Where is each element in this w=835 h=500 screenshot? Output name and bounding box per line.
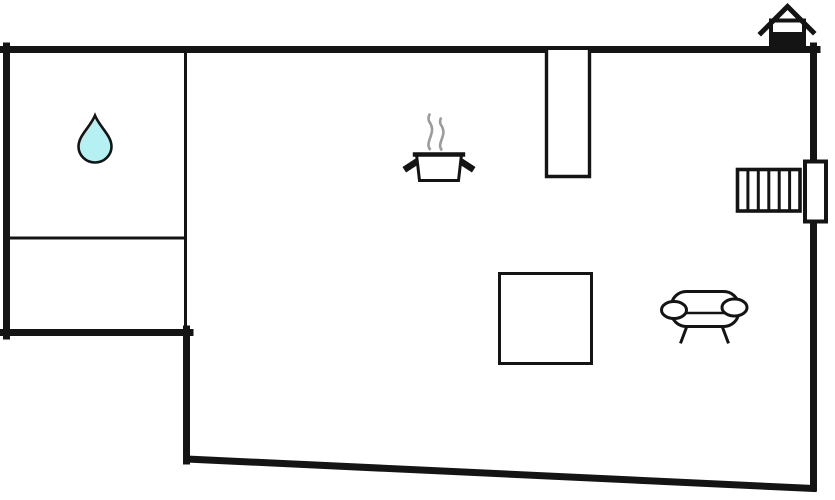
sofa-right-leg	[722, 326, 728, 342]
table-icon: square table	[500, 274, 592, 364]
interior-wall-stub: interior wall stub	[547, 50, 590, 177]
steam-lines	[428, 114, 443, 151]
pot-body	[417, 155, 462, 181]
house-icon: house entrance marker	[761, 7, 813, 47]
floor-plan: interior wall stub staircase door openin…	[0, 0, 835, 500]
steam-line-left	[428, 114, 432, 151]
sofa-icon: sofa (living area)	[662, 292, 748, 343]
wall-stub-outline	[547, 50, 590, 177]
cooking-pot-icon: cooking pot with steam (kitchen)	[407, 114, 471, 181]
walls	[3, 46, 817, 489]
door-leaf	[805, 162, 826, 222]
floor-plan-drawing: interior wall stub staircase door openin…	[0, 0, 835, 500]
water-drop-shape	[79, 116, 112, 163]
sofa-right-armrest	[722, 299, 747, 316]
bottom-slanted-wall	[187, 459, 813, 489]
table-outline	[500, 274, 592, 364]
door-icon: door opening	[805, 162, 826, 222]
stairs-icon: staircase	[738, 170, 801, 212]
water-drop-icon: water drop (bathroom)	[79, 116, 112, 163]
sofa-left-armrest	[662, 302, 687, 319]
steam-line-right	[440, 118, 443, 151]
sofa-left-leg	[681, 326, 687, 342]
house-body-lower-half	[770, 32, 806, 47]
